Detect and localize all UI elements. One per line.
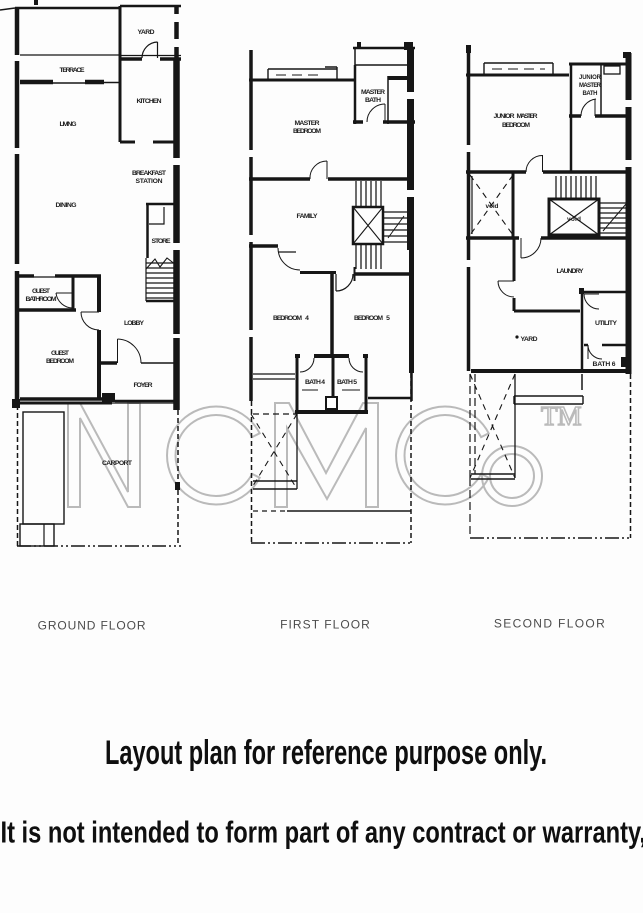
- svg-text:YARD: YARD: [138, 29, 155, 36]
- svg-text:JUNIOR: JUNIOR: [494, 113, 515, 120]
- svg-text:BEDROOM: BEDROOM: [354, 315, 383, 322]
- svg-text:MASTER: MASTER: [295, 120, 320, 127]
- svg-text:void: void: [567, 216, 581, 223]
- svg-text:4: 4: [305, 315, 309, 322]
- svg-text:MASTER: MASTER: [579, 83, 602, 89]
- svg-text:STORE: STORE: [152, 238, 171, 245]
- svg-text:LAUNDRY: LAUNDRY: [557, 268, 584, 275]
- svg-text:FIRST FLOOR: FIRST FLOOR: [280, 618, 371, 632]
- svg-text:void: void: [486, 203, 499, 210]
- svg-text:YARD: YARD: [521, 336, 538, 343]
- svg-text:GUEST: GUEST: [32, 288, 51, 295]
- svg-text:GUEST: GUEST: [51, 350, 70, 357]
- svg-text:STATION: STATION: [136, 178, 163, 185]
- svg-text:MASTER: MASTER: [361, 89, 385, 96]
- svg-text:FAMILY: FAMILY: [297, 213, 318, 220]
- svg-text:BEDROOM: BEDROOM: [46, 358, 74, 365]
- svg-text:BATH 5: BATH 5: [337, 379, 357, 386]
- svg-text:TERRACE: TERRACE: [60, 67, 85, 74]
- svg-text:BATH: BATH: [365, 97, 381, 104]
- svg-text:KITCHEN: KITCHEN: [137, 98, 162, 105]
- svg-text:BEDROOM: BEDROOM: [293, 128, 321, 135]
- svg-text:MASTER: MASTER: [517, 113, 538, 120]
- svg-text:CARPORT: CARPORT: [102, 460, 133, 467]
- svg-text:Layout plan for reference purp: Layout plan for reference purpose only.: [105, 735, 547, 772]
- svg-text:LIVING: LIVING: [60, 121, 77, 128]
- svg-text:DINING: DINING: [56, 202, 77, 209]
- svg-text:SECOND FLOOR: SECOND FLOOR: [494, 617, 606, 631]
- svg-text:BATH 6: BATH 6: [593, 361, 616, 368]
- svg-text:BEDROOM: BEDROOM: [273, 315, 302, 322]
- svg-text:BATH: BATH: [583, 91, 598, 97]
- svg-text:BREAKFAST: BREAKFAST: [132, 170, 167, 177]
- svg-text:BATHROOM: BATHROOM: [26, 296, 57, 303]
- svg-text:BEDROOM: BEDROOM: [502, 122, 530, 129]
- svg-text:LOBBY: LOBBY: [124, 320, 144, 327]
- svg-text:GROUND FLOOR: GROUND FLOOR: [38, 619, 147, 633]
- svg-text:JUNIOR: JUNIOR: [579, 75, 602, 81]
- svg-text:BATH 4: BATH 4: [305, 379, 325, 386]
- svg-text:5: 5: [386, 315, 390, 322]
- svg-text:It is not intended to form par: It is not intended to form part of any c…: [1, 814, 643, 849]
- svg-text:UTILITY: UTILITY: [595, 320, 617, 327]
- svg-text:TM: TM: [541, 401, 582, 431]
- svg-text:FOYER: FOYER: [134, 382, 153, 389]
